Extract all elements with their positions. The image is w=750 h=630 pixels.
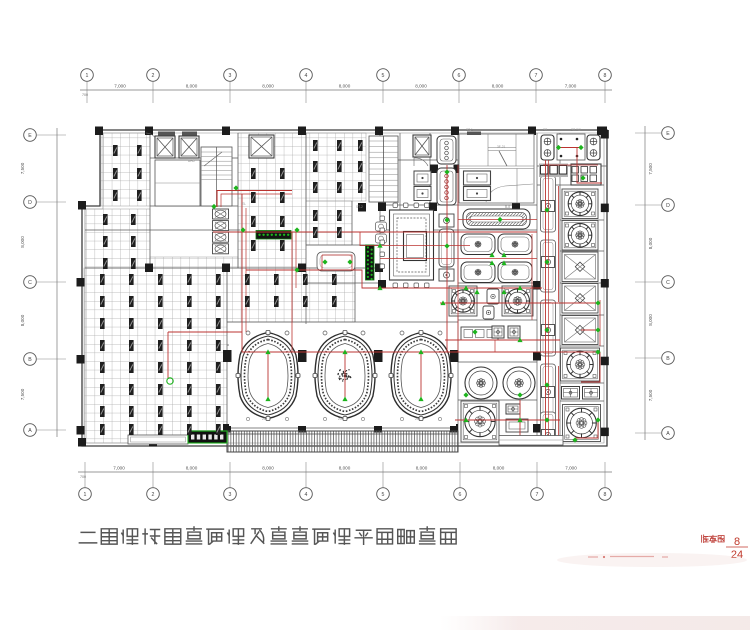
svg-text:4: 4 bbox=[305, 492, 308, 498]
svg-text:E: E bbox=[666, 131, 670, 137]
svg-text:8,000: 8,000 bbox=[186, 84, 198, 89]
svg-text:AHU: AHU bbox=[188, 159, 195, 163]
svg-text:5: 5 bbox=[382, 73, 385, 79]
svg-text:A: A bbox=[666, 431, 670, 437]
svg-text:4: 4 bbox=[305, 73, 308, 79]
svg-text:3: 3 bbox=[229, 492, 232, 498]
svg-text:B: B bbox=[28, 357, 32, 363]
svg-text:8,000: 8,000 bbox=[493, 466, 505, 471]
svg-text:2: 2 bbox=[152, 492, 155, 498]
svg-text:D: D bbox=[28, 200, 32, 206]
svg-text:7: 7 bbox=[536, 492, 539, 498]
svg-text:3F-21: 3F-21 bbox=[497, 145, 506, 149]
svg-text:7,500: 7,500 bbox=[648, 389, 653, 401]
svg-text:202: 202 bbox=[262, 417, 268, 421]
svg-text:203: 203 bbox=[338, 417, 344, 421]
svg-text:7,000: 7,000 bbox=[565, 84, 577, 89]
svg-text:7: 7 bbox=[535, 73, 538, 79]
svg-text:8,000: 8,000 bbox=[262, 84, 274, 89]
svg-text:C: C bbox=[666, 280, 670, 286]
svg-text:B-8: B-8 bbox=[505, 205, 510, 209]
svg-text:7,000: 7,000 bbox=[113, 466, 125, 471]
svg-text:SP: SP bbox=[543, 128, 547, 132]
svg-text:7,000: 7,000 bbox=[114, 84, 126, 89]
svg-text:8,000: 8,000 bbox=[262, 466, 274, 471]
svg-text:1: 1 bbox=[84, 492, 87, 498]
svg-text:8: 8 bbox=[604, 492, 607, 498]
svg-text:3: 3 bbox=[229, 73, 232, 79]
svg-text:7,500: 7,500 bbox=[648, 163, 653, 175]
svg-text:7,500: 7,500 bbox=[20, 162, 25, 174]
svg-text:8,000: 8,000 bbox=[339, 466, 351, 471]
svg-text:5: 5 bbox=[382, 492, 385, 498]
svg-text:6: 6 bbox=[459, 492, 462, 498]
svg-text:8,000: 8,000 bbox=[416, 466, 428, 471]
svg-text:8: 8 bbox=[604, 73, 607, 79]
svg-text:8,000: 8,000 bbox=[648, 314, 653, 326]
svg-text:204: 204 bbox=[415, 417, 421, 421]
svg-text:C: C bbox=[28, 280, 32, 286]
svg-text:8,000: 8,000 bbox=[648, 237, 653, 249]
svg-text:EL: EL bbox=[242, 202, 246, 206]
svg-text:ST-1: ST-1 bbox=[466, 128, 473, 132]
svg-text:8,000: 8,000 bbox=[492, 84, 504, 89]
svg-text:8,000: 8,000 bbox=[20, 314, 25, 326]
svg-text:2: 2 bbox=[152, 73, 155, 79]
svg-text:7,000: 7,000 bbox=[565, 466, 577, 471]
svg-text:8,000: 8,000 bbox=[186, 466, 198, 471]
svg-text:8,000: 8,000 bbox=[415, 84, 427, 89]
svg-text:SP 8W: SP 8W bbox=[571, 128, 581, 132]
svg-text:ST-2: ST-2 bbox=[356, 205, 363, 209]
svg-text:1: 1 bbox=[86, 73, 89, 79]
svg-text:B: B bbox=[666, 356, 670, 362]
svg-text:8,000: 8,000 bbox=[20, 236, 25, 248]
svg-text:6: 6 bbox=[458, 73, 461, 79]
svg-text:8: 8 bbox=[734, 536, 740, 548]
svg-text:7,500: 7,500 bbox=[20, 388, 25, 400]
svg-text:E: E bbox=[28, 133, 32, 139]
svg-text:A: A bbox=[28, 428, 32, 434]
svg-text:8,000: 8,000 bbox=[339, 84, 351, 89]
svg-text:D: D bbox=[666, 203, 670, 209]
svg-text:700: 700 bbox=[82, 93, 88, 97]
svg-text:700: 700 bbox=[80, 475, 86, 479]
